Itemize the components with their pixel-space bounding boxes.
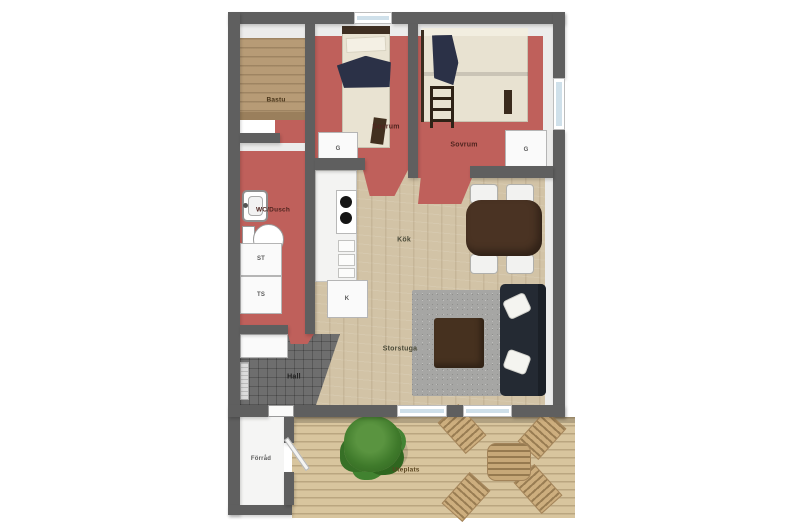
- kitchen-drawer-1: [338, 240, 355, 252]
- patio-label: Uteplats: [392, 467, 419, 474]
- kitchen-drawer-3: [338, 268, 355, 278]
- drying-cabinet-label: TS: [257, 292, 265, 298]
- wall-bottom-c: [512, 405, 565, 417]
- bed-single-headboard: [342, 26, 390, 34]
- wall-bedroom1-bottom: [315, 158, 365, 170]
- bed-single-pillow: [346, 36, 387, 53]
- kitchen-drawer-2: [338, 254, 355, 266]
- sauna-bench: [240, 38, 305, 120]
- wall-left: [228, 12, 240, 515]
- wall-bottom-b: [294, 405, 397, 417]
- dining-chair-3: [470, 254, 498, 274]
- dining-table: [466, 200, 542, 256]
- stove-burner-1: [340, 196, 352, 208]
- fridge-label: K: [345, 296, 350, 302]
- patio-deck-shadow: [292, 417, 575, 423]
- patio-slider-1: [397, 405, 447, 417]
- cleaning-cabinet-label: ST: [257, 256, 265, 262]
- kitchen-label: Kök: [397, 237, 411, 244]
- sofa-backrest: [538, 284, 546, 396]
- hall-closet: [240, 334, 288, 358]
- bedroom1-label: Sovrum: [372, 124, 399, 131]
- hall-label: Hall: [287, 374, 301, 381]
- patio-slider-2-glass: [466, 409, 509, 413]
- bathroom-wallface: [240, 143, 305, 151]
- bunk-bed-ladder: [430, 86, 454, 128]
- wardrobe-right-label: G: [524, 147, 529, 153]
- sauna-bench-edge: [240, 112, 305, 120]
- patio-slider-1-glass: [400, 409, 444, 413]
- entrance-door: [268, 405, 294, 417]
- patio-table: [487, 443, 531, 481]
- wardrobe-left-label: G: [336, 146, 341, 152]
- wall-storage-bottom: [228, 505, 292, 515]
- floor-plan: Bastu WC/Dusch Sovrum Sovrum Kök Storstu…: [0, 0, 795, 530]
- living-right-wallface: [545, 178, 553, 405]
- wall-bathroom-bottom: [240, 325, 288, 334]
- bedroom2-label: Sovrum: [450, 142, 477, 149]
- wall-storage-right-b: [284, 472, 294, 505]
- sauna-wallface: [240, 24, 305, 38]
- window-top-glass: [357, 16, 389, 20]
- bunk-bed-post: [504, 90, 512, 114]
- bedroom2-door-threshold: [418, 166, 470, 178]
- window-top: [354, 12, 392, 24]
- wall-sauna-bottom: [240, 133, 280, 143]
- stove-burner-2: [340, 212, 352, 224]
- sauna-door-threshold: [280, 133, 305, 143]
- wall-top-right: [392, 12, 565, 24]
- wall-bottom-stub: [447, 405, 463, 417]
- bedroom1-door-threshold: [365, 158, 408, 170]
- window-right: [553, 78, 565, 130]
- window-right-glass: [556, 82, 562, 126]
- sauna-label: Bastu: [266, 97, 285, 104]
- patio-slider-2: [463, 405, 512, 417]
- wall-sauna-bath-column: [305, 24, 315, 334]
- hall-radiator: [240, 362, 249, 400]
- wall-right-upper: [553, 12, 565, 78]
- wall-right-lower: [553, 130, 565, 417]
- living-room-label: Storstuga: [383, 346, 417, 353]
- sink-faucet: [243, 203, 248, 208]
- dining-chair-4: [506, 254, 534, 274]
- wall-bottom-a: [228, 405, 268, 417]
- coffee-table: [434, 318, 484, 368]
- storage-label: Förråd: [251, 456, 271, 462]
- wall-bedroom2-bottom: [470, 166, 553, 178]
- bunk-bed-rail: [421, 30, 424, 122]
- wall-bedroom-divider: [408, 24, 418, 178]
- wall-top-left: [228, 12, 354, 24]
- bathroom-label: WC/Dusch: [256, 207, 290, 214]
- bunk-bed-top-edge: [422, 28, 528, 36]
